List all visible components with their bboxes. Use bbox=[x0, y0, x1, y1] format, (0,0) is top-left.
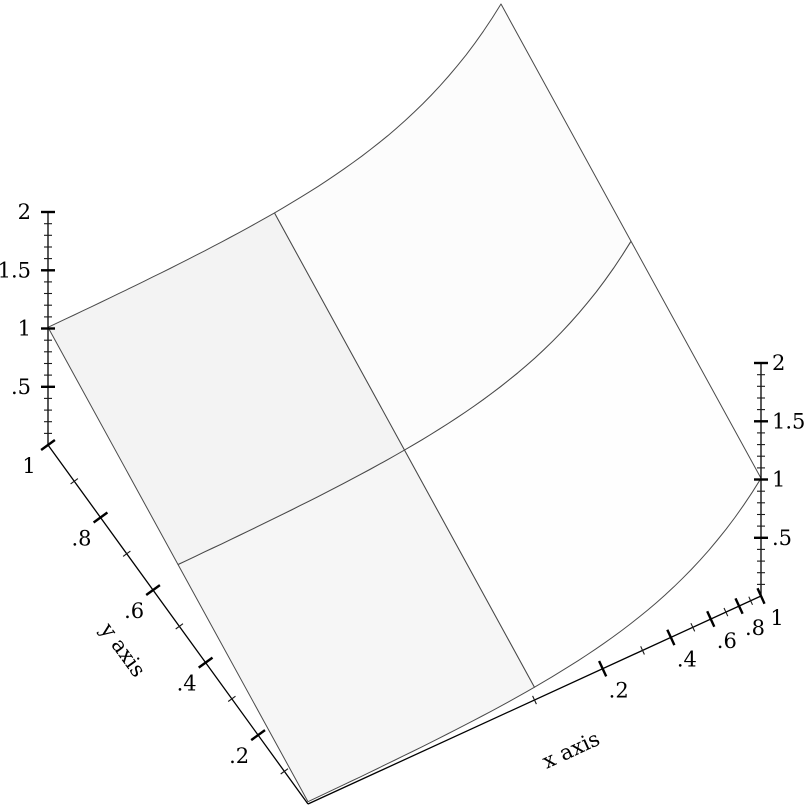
y-axis-tick-label: .6 bbox=[124, 599, 144, 623]
z-axis-right-tick-label: 1 bbox=[772, 468, 785, 492]
x-axis-tick-label: .6 bbox=[717, 629, 737, 653]
plot3d-figure: x axis .2.4.6.81.2.4.6.81.5.5111.51.522x… bbox=[0, 0, 812, 812]
y-axis-major-tick bbox=[251, 730, 265, 740]
z-axis-right-tick-label: 2 bbox=[772, 351, 785, 375]
x-axis-tick-label: .2 bbox=[609, 679, 629, 703]
y-axis-major-tick bbox=[94, 513, 108, 523]
y-axis-minor-tick bbox=[123, 551, 130, 556]
z-axis-left-tick-label: 1.5 bbox=[0, 258, 31, 282]
z-axis-left-tick-label: 1 bbox=[18, 317, 31, 341]
y-axis-minor-tick bbox=[176, 624, 183, 629]
y-axis-tick-label: .2 bbox=[229, 744, 249, 768]
x-axis-tick-label: .8 bbox=[745, 616, 765, 640]
z-axis-left-tick-label: .5 bbox=[11, 375, 31, 399]
y-axis-tick-label: 1 bbox=[22, 454, 35, 478]
surface3d-plot-canvas: x axis .2.4.6.81.2.4.6.81.5.5111.51.522x… bbox=[0, 0, 812, 812]
x-axis-major-tick bbox=[667, 630, 674, 645]
y-axis-minor-tick bbox=[228, 696, 235, 701]
y-axis-title: y axis bbox=[95, 618, 150, 682]
y-axis-major-tick bbox=[146, 585, 160, 595]
y-axis-major-tick bbox=[199, 658, 213, 668]
x-axis-tick-label: 1 bbox=[770, 606, 783, 630]
x-axis-title: x axis bbox=[539, 726, 604, 773]
y-axis-tick-label: .8 bbox=[71, 527, 91, 551]
y-axis-minor-tick bbox=[71, 479, 78, 484]
x-axis-tick-label: .4 bbox=[677, 647, 697, 671]
z-axis-right-tick-label: .5 bbox=[772, 526, 792, 550]
y-axis-minor-tick bbox=[281, 769, 288, 774]
x-axis-major-tick bbox=[736, 598, 743, 613]
x-axis-major-tick bbox=[599, 661, 606, 676]
z-axis-right-tick-label: 1.5 bbox=[772, 409, 805, 433]
z-axis-left-tick-label: 2 bbox=[18, 200, 31, 224]
y-axis-tick-label: .4 bbox=[177, 672, 197, 696]
x-axis-major-tick bbox=[707, 611, 714, 627]
